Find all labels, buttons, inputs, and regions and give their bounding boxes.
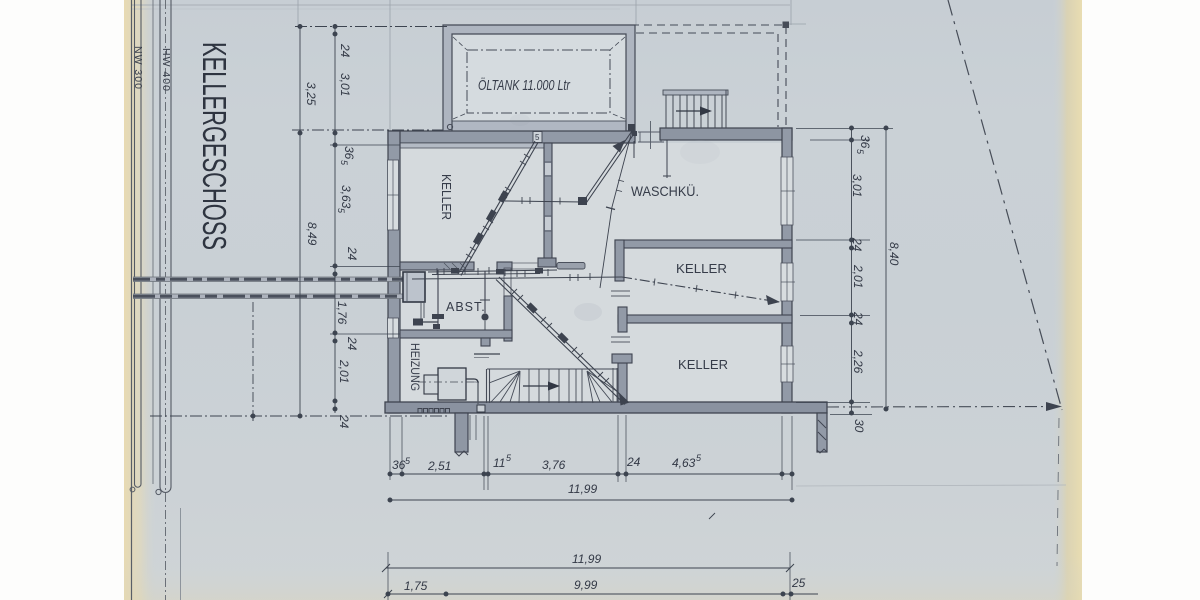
svg-text:HEIZUNG: HEIZUNG	[408, 343, 420, 391]
svg-text:36: 36	[858, 135, 872, 149]
svg-text:8,40: 8,40	[887, 242, 901, 266]
svg-text:2,01: 2,01	[337, 359, 351, 383]
svg-text:24: 24	[338, 43, 352, 58]
svg-text:3,25: 3,25	[304, 82, 318, 106]
svg-text:25: 25	[791, 576, 806, 590]
svg-text:ABST.: ABST.	[446, 300, 486, 314]
svg-text:1,75: 1,75	[404, 579, 428, 593]
svg-text:KELLER: KELLER	[439, 174, 454, 220]
svg-text:11,99: 11,99	[568, 482, 597, 496]
svg-text:3,01: 3,01	[338, 73, 352, 96]
svg-text:24: 24	[851, 311, 865, 326]
svg-text:24: 24	[337, 414, 351, 429]
svg-text:8,49: 8,49	[305, 222, 319, 246]
svg-text:24: 24	[626, 455, 641, 469]
svg-text:24: 24	[850, 237, 864, 252]
svg-text:1,76: 1,76	[335, 301, 349, 325]
svg-text:3,01: 3,01	[850, 174, 864, 197]
svg-text:KELLER: KELLER	[678, 357, 728, 372]
svg-text:NW 300: NW 300	[132, 46, 144, 90]
svg-text:WASCHKÜ.: WASCHKÜ.	[631, 182, 699, 199]
svg-text:24: 24	[345, 336, 359, 351]
svg-text:3,63: 3,63	[339, 185, 353, 209]
svg-text:2,51: 2,51	[427, 459, 451, 473]
svg-text:KELLERGESCHOSS: KELLERGESCHOSS	[196, 42, 233, 250]
svg-text:ÖLTANK 11.000 Ltr: ÖLTANK 11.000 Ltr	[478, 76, 571, 94]
svg-text:9,99: 9,99	[574, 578, 598, 592]
svg-text:30: 30	[852, 419, 866, 433]
svg-text:2,01: 2,01	[851, 264, 865, 288]
svg-text:5: 5	[535, 133, 540, 142]
svg-text:3,76: 3,76	[542, 458, 566, 472]
svg-text:36: 36	[342, 146, 356, 160]
svg-text:HW 400: HW 400	[160, 48, 172, 92]
svg-text:4,63: 4,63	[672, 456, 696, 470]
svg-text:11: 11	[493, 456, 505, 470]
svg-text:36: 36	[392, 458, 406, 472]
svg-text:KELLER: KELLER	[676, 261, 727, 276]
svg-text:2,26: 2,26	[851, 349, 865, 374]
svg-text:24: 24	[345, 246, 359, 261]
svg-text:11,99: 11,99	[572, 552, 601, 566]
